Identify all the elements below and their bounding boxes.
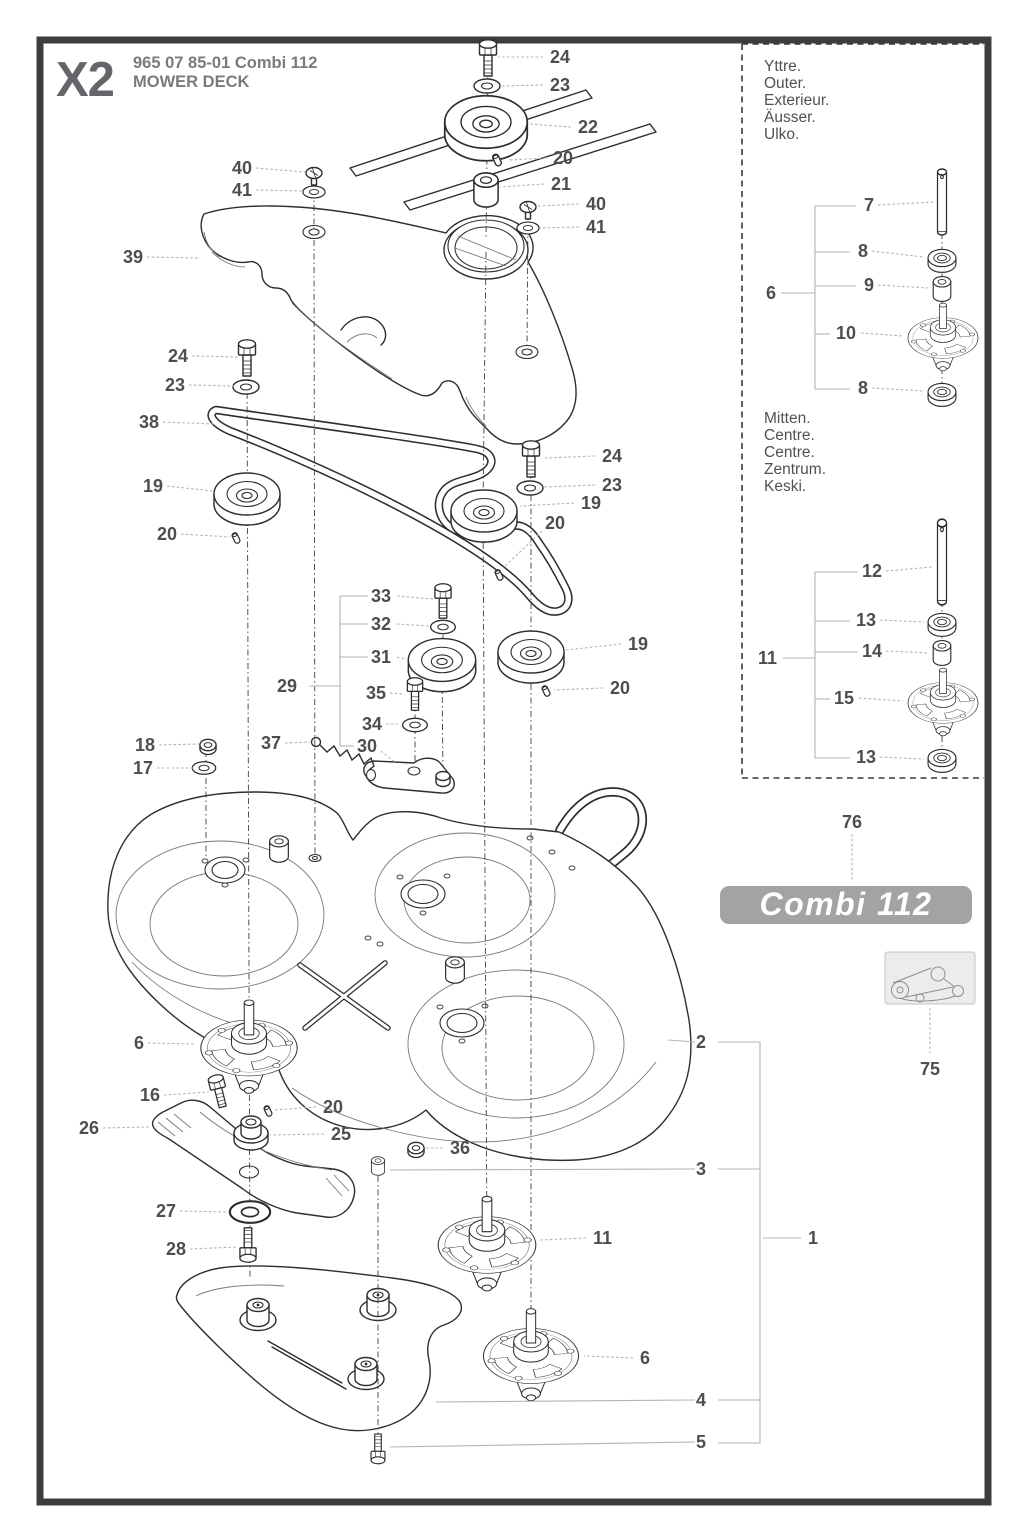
pulley-19-left bbox=[214, 473, 280, 525]
centre-label: Centre. bbox=[764, 427, 815, 444]
callout-6: 6 bbox=[640, 1348, 650, 1368]
pulley-19-right bbox=[498, 631, 564, 683]
bolt-16 bbox=[207, 1073, 230, 1108]
callout-23: 23 bbox=[165, 375, 185, 395]
callout-75: 75 bbox=[920, 1059, 940, 1079]
blade-washer-27 bbox=[230, 1201, 270, 1223]
screw-40-right bbox=[520, 202, 536, 220]
callout-20: 20 bbox=[157, 524, 177, 544]
nut-36 bbox=[408, 1142, 424, 1157]
outer-label: Outer. bbox=[764, 75, 806, 92]
washer-23-top bbox=[474, 79, 500, 93]
callout-6: 6 bbox=[134, 1033, 144, 1053]
leader-line-9 bbox=[878, 285, 928, 288]
washer-23-left bbox=[233, 380, 259, 394]
callout-26: 26 bbox=[79, 1118, 99, 1138]
leader-line-7 bbox=[878, 202, 934, 205]
side-panel-text: Yttre. Outer. Exterieur. Äusser. Ulko. M… bbox=[764, 58, 829, 495]
bolt-24-left bbox=[239, 340, 256, 376]
leader-line-41 bbox=[256, 190, 303, 191]
screw-40-left bbox=[306, 168, 322, 186]
callout-24: 24 bbox=[550, 47, 570, 67]
key-20 bbox=[231, 532, 240, 544]
callout-8: 8 bbox=[858, 241, 868, 261]
leader-line-21 bbox=[500, 184, 544, 187]
centre-label: Centre. bbox=[764, 444, 815, 461]
key-20 bbox=[541, 685, 550, 697]
leader-line-19 bbox=[566, 644, 621, 650]
callout-20: 20 bbox=[323, 1097, 343, 1117]
leader-line-28 bbox=[190, 1247, 237, 1249]
leader-line-20 bbox=[554, 688, 603, 690]
leader-line-14 bbox=[886, 651, 928, 653]
leader-line-12 bbox=[886, 567, 932, 571]
leader-line-23 bbox=[189, 385, 234, 386]
spacer-14 bbox=[933, 641, 951, 666]
callout-30: 30 bbox=[357, 736, 377, 756]
callout-29: 29 bbox=[277, 676, 297, 696]
leader-line-18 bbox=[159, 744, 199, 745]
callout-6: 6 bbox=[766, 283, 776, 303]
centre-label: Mitten. bbox=[764, 410, 811, 427]
spacer-21 bbox=[474, 173, 498, 207]
leader-line-8 bbox=[872, 388, 924, 391]
deck-post bbox=[270, 836, 289, 862]
nut-18 bbox=[200, 739, 216, 754]
spacer-9 bbox=[933, 277, 951, 302]
callout-32: 32 bbox=[371, 614, 391, 634]
leader-line-32 bbox=[397, 624, 430, 626]
callout-13: 13 bbox=[856, 610, 876, 630]
callout-5: 5 bbox=[696, 1432, 706, 1452]
callout-8: 8 bbox=[858, 378, 868, 398]
leader-line-13 bbox=[880, 757, 924, 759]
callout-23: 23 bbox=[550, 75, 570, 95]
callout-11: 11 bbox=[593, 1228, 612, 1248]
callout-7: 7 bbox=[864, 195, 874, 215]
callout-40: 40 bbox=[586, 194, 606, 214]
callout-15: 15 bbox=[834, 688, 854, 708]
callout-19: 19 bbox=[581, 493, 601, 513]
bracket-line bbox=[783, 572, 858, 658]
callout-38: 38 bbox=[139, 412, 159, 432]
leader-line-25 bbox=[270, 1134, 324, 1135]
callout-1: 1 bbox=[808, 1228, 818, 1248]
callout-20: 20 bbox=[610, 678, 630, 698]
leader-line-11 bbox=[540, 1238, 586, 1240]
baffle-plate bbox=[176, 1266, 461, 1431]
bracket-line bbox=[390, 1442, 695, 1447]
leader-line-19 bbox=[167, 486, 212, 491]
idler-arm-30 bbox=[364, 758, 454, 793]
callout-2: 2 bbox=[696, 1032, 706, 1052]
leader-line-33 bbox=[397, 596, 434, 599]
bolt-24-top bbox=[480, 40, 497, 76]
callout-24: 24 bbox=[602, 446, 622, 466]
callout-18: 18 bbox=[135, 735, 155, 755]
callout-14: 14 bbox=[862, 641, 882, 661]
bracket-line bbox=[718, 1042, 760, 1443]
callout-11: 11 bbox=[758, 648, 777, 668]
leader-line-26 bbox=[103, 1127, 150, 1128]
shaft-7 bbox=[938, 169, 947, 235]
callout-25: 25 bbox=[331, 1124, 351, 1144]
bracket-line bbox=[815, 658, 850, 758]
leader-line-13 bbox=[880, 620, 924, 622]
washer-17 bbox=[192, 762, 215, 775]
leader-line-22 bbox=[530, 124, 571, 127]
key-20 bbox=[263, 1105, 272, 1117]
washer-23-centre bbox=[517, 481, 543, 495]
bolt-5 bbox=[371, 1434, 385, 1464]
callout-16: 16 bbox=[140, 1085, 160, 1105]
callout-22: 22 bbox=[578, 117, 598, 137]
callout-27: 27 bbox=[156, 1201, 176, 1221]
leader-line-6 bbox=[584, 1356, 633, 1358]
callout-31: 31 bbox=[371, 647, 391, 667]
page-title: MOWER DECK bbox=[133, 73, 249, 91]
callout-37: 37 bbox=[261, 733, 281, 753]
leader-line-24 bbox=[192, 356, 238, 357]
bearing-8-upper bbox=[928, 249, 956, 272]
callout-21: 21 bbox=[551, 174, 571, 194]
callout-13: 13 bbox=[856, 747, 876, 767]
callout-24: 24 bbox=[168, 346, 188, 366]
spacer-3 bbox=[371, 1157, 384, 1176]
callout-39: 39 bbox=[123, 247, 143, 267]
callout-41: 41 bbox=[586, 217, 606, 237]
badge-and-decal: Combi 112 bbox=[720, 886, 975, 1004]
callout-41: 41 bbox=[232, 180, 252, 200]
callout-33: 33 bbox=[371, 586, 391, 606]
leader-line-31 bbox=[397, 657, 407, 659]
outer-label: Exterieur. bbox=[764, 92, 829, 109]
washer-41-right bbox=[517, 222, 539, 234]
belt-routing-decal bbox=[885, 952, 975, 1004]
callout-35: 35 bbox=[366, 683, 386, 703]
bearing-13-upper bbox=[928, 613, 956, 636]
pulley-19-centre bbox=[451, 490, 517, 542]
bolt-24-centre bbox=[523, 441, 540, 477]
bearing-13-lower bbox=[928, 749, 956, 772]
leader-line-10 bbox=[861, 333, 903, 336]
header: X2 965 07 85-01 Combi 112 MOWER DECK bbox=[56, 53, 317, 107]
bracket-line bbox=[390, 1169, 695, 1170]
callout-12: 12 bbox=[862, 561, 882, 581]
leader-line-39 bbox=[147, 257, 199, 258]
callout-20: 20 bbox=[553, 148, 573, 168]
spindle-housing-15 bbox=[908, 668, 978, 736]
leader-line-38 bbox=[163, 422, 214, 424]
outer-label: Äusser. bbox=[764, 109, 816, 126]
leader-line-15 bbox=[859, 698, 903, 701]
spindle-assembly-11-centre bbox=[438, 1196, 536, 1291]
bolt-35 bbox=[407, 678, 422, 711]
outer-label: Ulko. bbox=[764, 126, 799, 143]
blade-support-cup-25 bbox=[234, 1116, 268, 1150]
leader-line-6 bbox=[148, 1043, 196, 1044]
callout-3: 3 bbox=[696, 1159, 706, 1179]
combi-badge-text: Combi 112 bbox=[760, 886, 933, 922]
leader-line-24 bbox=[545, 456, 595, 458]
callout-36: 36 bbox=[450, 1138, 470, 1158]
bearing-8-lower bbox=[928, 383, 956, 406]
washer-34 bbox=[403, 718, 428, 731]
leader-line-35 bbox=[390, 693, 404, 694]
parts-diagram-page: Combi 112 X2 965 07 85-01 Combi 112 MOWE… bbox=[0, 0, 1024, 1534]
callout-4: 4 bbox=[696, 1390, 706, 1410]
belt-cover bbox=[201, 206, 576, 444]
leader-line-37 bbox=[285, 742, 310, 743]
exploded-view-diagram: Combi 112 X2 965 07 85-01 Combi 112 MOWE… bbox=[0, 0, 1024, 1534]
axis-line bbox=[314, 240, 315, 854]
spindle-assembly-6-right bbox=[483, 1309, 578, 1401]
spindle-housing-10 bbox=[908, 303, 978, 371]
pulley-22 bbox=[445, 96, 528, 161]
bracket-line bbox=[436, 1400, 695, 1402]
blade-center-hole bbox=[240, 1166, 259, 1178]
leader-line-40 bbox=[256, 168, 305, 172]
bracket-line bbox=[781, 206, 856, 293]
bolt-33 bbox=[435, 584, 451, 618]
leader-line-40 bbox=[538, 204, 579, 206]
callout-20: 20 bbox=[545, 513, 565, 533]
leader-line-19 bbox=[520, 503, 574, 506]
callout-28: 28 bbox=[166, 1239, 186, 1259]
centre-spindle-group bbox=[908, 519, 978, 772]
shaft-12 bbox=[938, 519, 947, 605]
callout-9: 9 bbox=[864, 275, 874, 295]
leader-line-8 bbox=[872, 251, 924, 257]
callout-40: 40 bbox=[232, 158, 252, 178]
leader-line-23 bbox=[500, 85, 543, 86]
leader-line-27 bbox=[180, 1211, 229, 1212]
part-number: 965 07 85-01 Combi 112 bbox=[133, 54, 317, 72]
washer-41-left bbox=[303, 186, 325, 198]
callout-76: 76 bbox=[842, 812, 862, 832]
callout-19: 19 bbox=[628, 634, 648, 654]
leader-line-23 bbox=[544, 485, 595, 487]
leader-line-16 bbox=[164, 1092, 209, 1095]
centre-label: Zentrum. bbox=[764, 461, 826, 478]
callout-19: 19 bbox=[143, 476, 163, 496]
callout-17: 17 bbox=[133, 758, 153, 778]
page-code: X2 bbox=[56, 53, 114, 107]
centre-label: Keski. bbox=[764, 478, 806, 495]
callout-23: 23 bbox=[602, 475, 622, 495]
outer-label: Yttre. bbox=[764, 58, 801, 75]
leader-line-41 bbox=[540, 227, 579, 228]
deck-post bbox=[446, 957, 465, 983]
blade-bolt-28 bbox=[240, 1228, 256, 1262]
washer-32 bbox=[431, 620, 456, 633]
leader-line-20 bbox=[181, 534, 230, 537]
callout-34: 34 bbox=[362, 714, 382, 734]
callout-10: 10 bbox=[836, 323, 856, 343]
